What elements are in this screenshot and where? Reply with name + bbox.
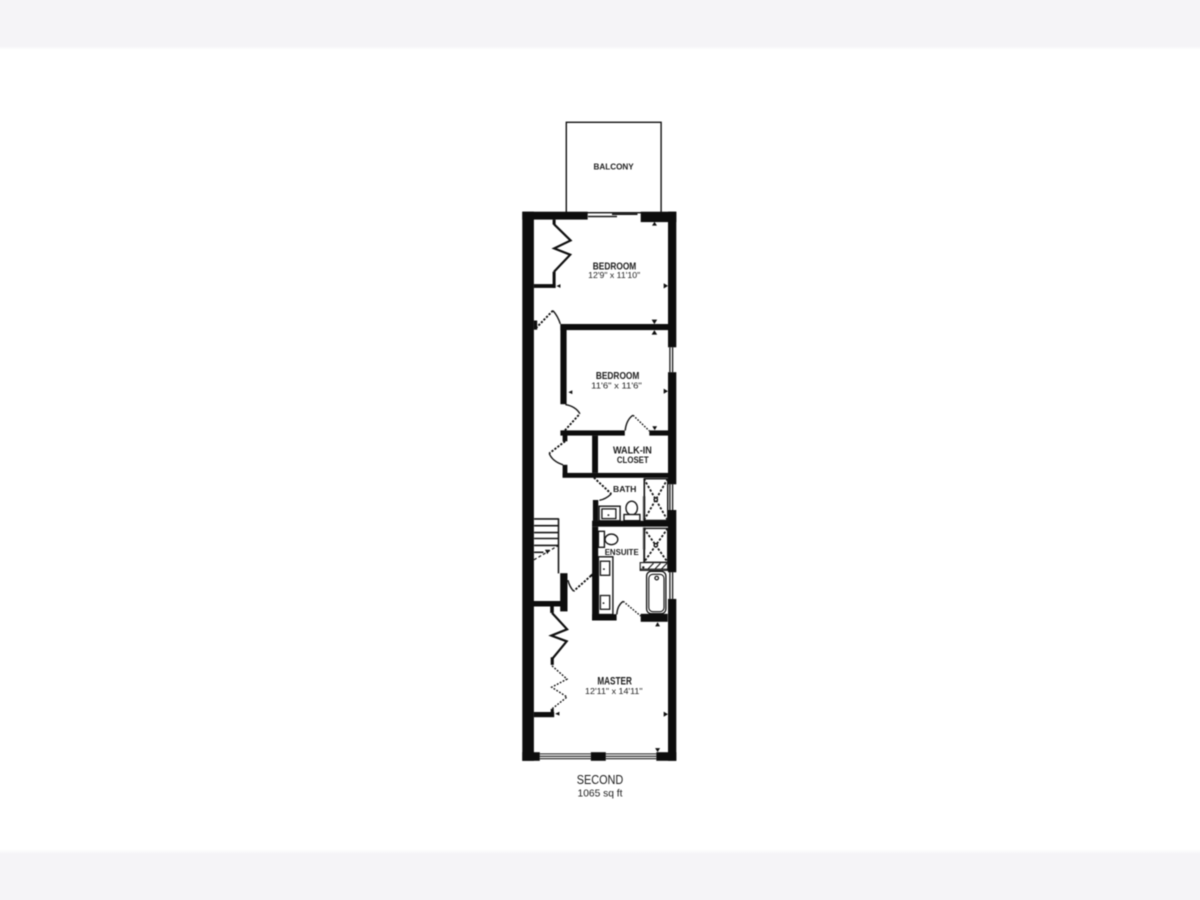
svg-text:12'9" x 11'10": 12'9" x 11'10" xyxy=(588,271,640,280)
svg-text:1065 sq ft: 1065 sq ft xyxy=(578,788,623,799)
svg-text:MASTER: MASTER xyxy=(597,676,632,688)
svg-text:SECOND: SECOND xyxy=(577,773,624,787)
svg-text:CLOSET: CLOSET xyxy=(617,455,649,466)
svg-text:BEDROOM: BEDROOM xyxy=(596,371,640,382)
svg-text:BATH: BATH xyxy=(613,484,636,494)
svg-text:BALCONY: BALCONY xyxy=(594,162,635,171)
svg-text:12'11" x 14'11": 12'11" x 14'11" xyxy=(585,687,643,696)
svg-text:11'6" x 11'6": 11'6" x 11'6" xyxy=(591,382,642,391)
svg-text:ENSUITE: ENSUITE xyxy=(605,547,639,557)
